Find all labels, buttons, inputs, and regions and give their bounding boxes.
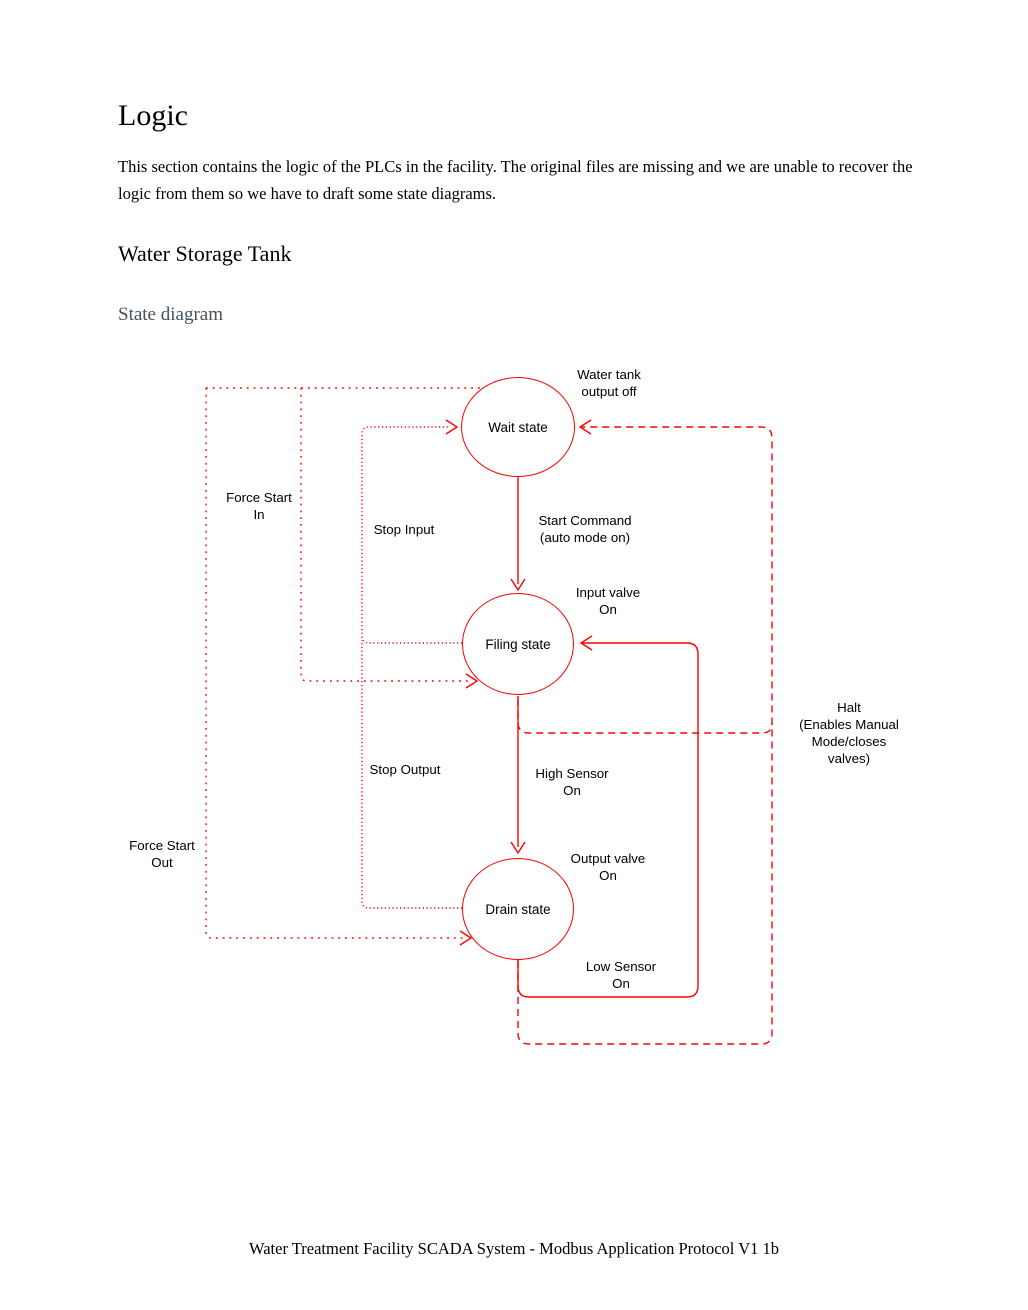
label-output-valve-on: Output valve On [571,850,646,884]
state-label-filing: Filing state [485,637,550,652]
label-force-start-in: Force Start In [226,489,292,523]
label-high-sensor-on: High Sensor On [535,765,608,799]
arrow-halt-into-wait [580,420,591,434]
state-node-filing: Filing state [462,593,574,695]
label-force-start-out: Force Start Out [129,837,195,871]
label-low-sensor-on: Low Sensor On [586,958,656,992]
force-start-out-line [206,388,464,938]
label-halt: Halt (Enables Manual Mode/closes valves) [799,699,899,767]
halt-branch-from-filing-line [518,699,772,733]
label-water-tank-output-off: Water tank output off [577,366,641,400]
document-page: Logic This section contains the logic of… [0,0,1028,1310]
label-input-valve-on: Input valve On [576,584,640,618]
state-node-wait: Wait state [461,377,575,477]
state-label-wait: Wait state [488,420,548,435]
label-start-command: Start Command (auto mode on) [538,512,631,546]
label-stop-output: Stop Output [370,761,441,778]
state-label-drain: Drain state [485,902,550,917]
page-footer: Water Treatment Facility SCADA System - … [0,1239,1028,1259]
state-node-drain: Drain state [462,858,574,960]
label-stop-input: Stop Input [374,521,435,538]
